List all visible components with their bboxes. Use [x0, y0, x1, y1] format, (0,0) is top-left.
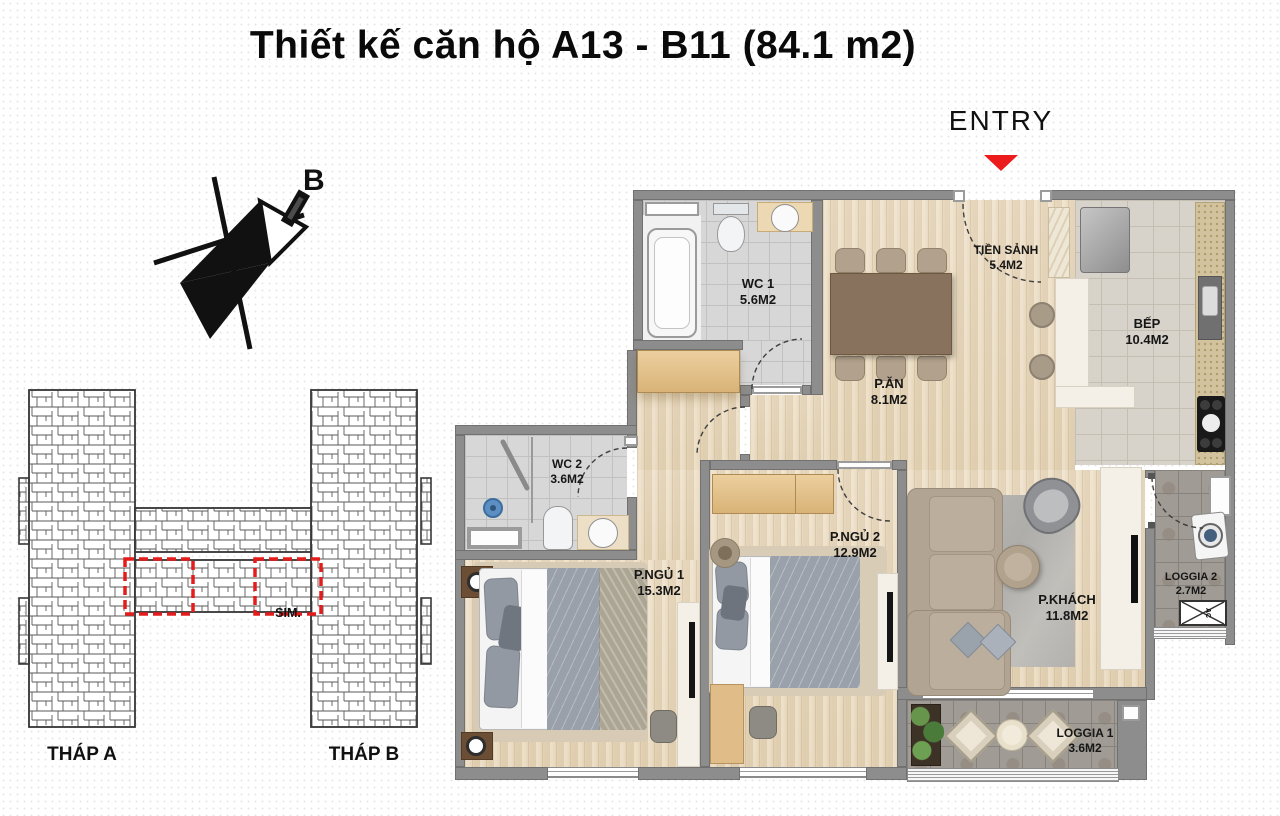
entry-label: ENTRY [949, 105, 1053, 137]
tower-b-label: THÁP B [314, 744, 414, 766]
floor-plan-page: Thiết kế căn hộ A13 - B11 (84.1 m2) ENTR… [0, 0, 1280, 816]
tower-b-footprint [311, 390, 431, 727]
room-label-p-an: P.ĂN8.1M2 [871, 376, 907, 408]
door-stub [1148, 522, 1155, 528]
room-label-tien-sanh: TIỀN SẢNH5.4M2 [974, 243, 1039, 273]
shower-head-dot [490, 505, 496, 511]
door-stub [1148, 473, 1155, 479]
site-plan [15, 388, 435, 738]
page-title: Thiết kế căn hộ A13 - B11 (84.1 m2) [250, 24, 916, 68]
room-label-wc2: WC 23.6M2 [550, 457, 583, 487]
compass-b-label: B [303, 164, 325, 198]
door-arc [1152, 477, 1203, 528]
room-label-p-khach: P.KHÁCH11.8M2 [1038, 592, 1096, 624]
room-label-p-ngu-1: P.NGỦ 115.3M2 [634, 567, 684, 599]
room-label-p-ngu-2: P.NGỦ 212.9M2 [830, 529, 880, 561]
room-label-bep: BẾP10.4M2 [1125, 316, 1168, 348]
entry-arrow-icon [984, 155, 1018, 171]
room-label-loggia-2: LOGGIA 22.7M2 [1165, 570, 1217, 598]
apartment-floor-plan: AC [455, 190, 1240, 790]
tower-a-footprint [19, 390, 135, 727]
shower-rod [503, 442, 527, 488]
door-arc [697, 407, 745, 455]
ac-label: AC [1195, 605, 1211, 621]
door-arc [752, 339, 802, 389]
door-arc [838, 469, 890, 521]
sim-unit-label: SIM. [258, 606, 318, 620]
plan-annotations [455, 190, 1240, 790]
door-arc [578, 448, 627, 497]
tower-a-label: THÁP A [32, 744, 132, 766]
room-label-wc1: WC 15.6M2 [740, 276, 776, 308]
room-label-loggia-1: LOGGIA 13.6M2 [1057, 726, 1114, 756]
